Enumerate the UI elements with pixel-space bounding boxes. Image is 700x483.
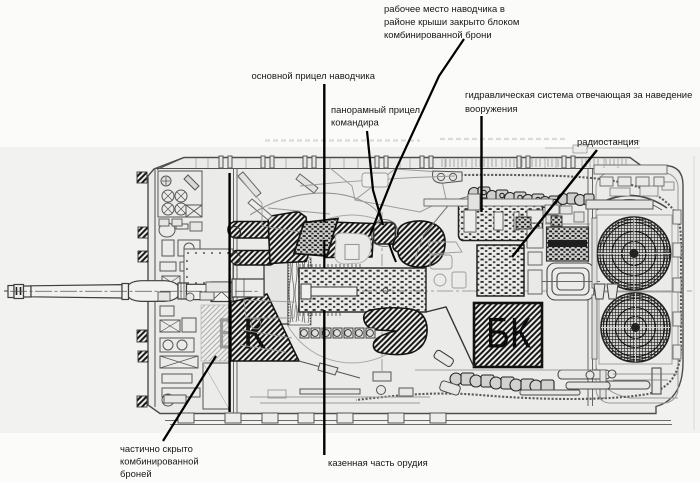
svg-text:вооружения: вооружения	[465, 104, 518, 115]
svg-text:командира: командира	[331, 118, 379, 129]
svg-text:радиостанция: радиостанция	[577, 137, 639, 148]
svg-text:броней: броней	[120, 469, 152, 480]
svg-text:казенная часть орудия: казенная часть орудия	[328, 458, 428, 469]
svg-text:частично скрыто: частично скрыто	[120, 444, 193, 455]
svg-text:комбинированной брони: комбинированной брони	[384, 30, 492, 41]
svg-text:районе крыши закрыто блоком: районе крыши закрыто блоком	[384, 17, 519, 28]
svg-text:панорамный прицел: панорамный прицел	[331, 105, 420, 116]
svg-text:комбинированной: комбинированной	[120, 457, 199, 468]
svg-text:гидравлическая система отвечаю: гидравлическая система отвечающая за нав…	[465, 90, 692, 101]
svg-text:рабочее место наводчика в: рабочее место наводчика в	[384, 4, 505, 15]
svg-text:основной прицел наводчика: основной прицел наводчика	[252, 71, 376, 82]
